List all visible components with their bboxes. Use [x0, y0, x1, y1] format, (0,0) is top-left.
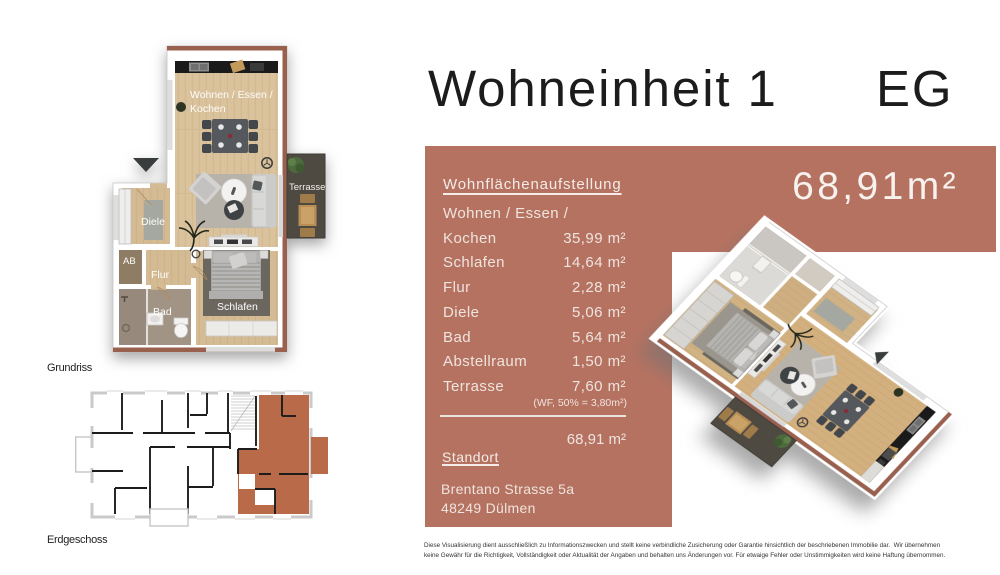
svg-text:Flur: Flur [151, 269, 170, 281]
svg-text:Bad: Bad [153, 306, 172, 318]
svg-text:Wohnen / Essen /: Wohnen / Essen / [190, 89, 273, 101]
svg-text:Diele: Diele [141, 216, 165, 228]
svg-text:Schlafen: Schlafen [217, 301, 258, 313]
svg-text:Kochen: Kochen [190, 103, 226, 115]
svg-text:Terrasse: Terrasse [289, 182, 325, 193]
svg-text:AB: AB [123, 256, 136, 267]
